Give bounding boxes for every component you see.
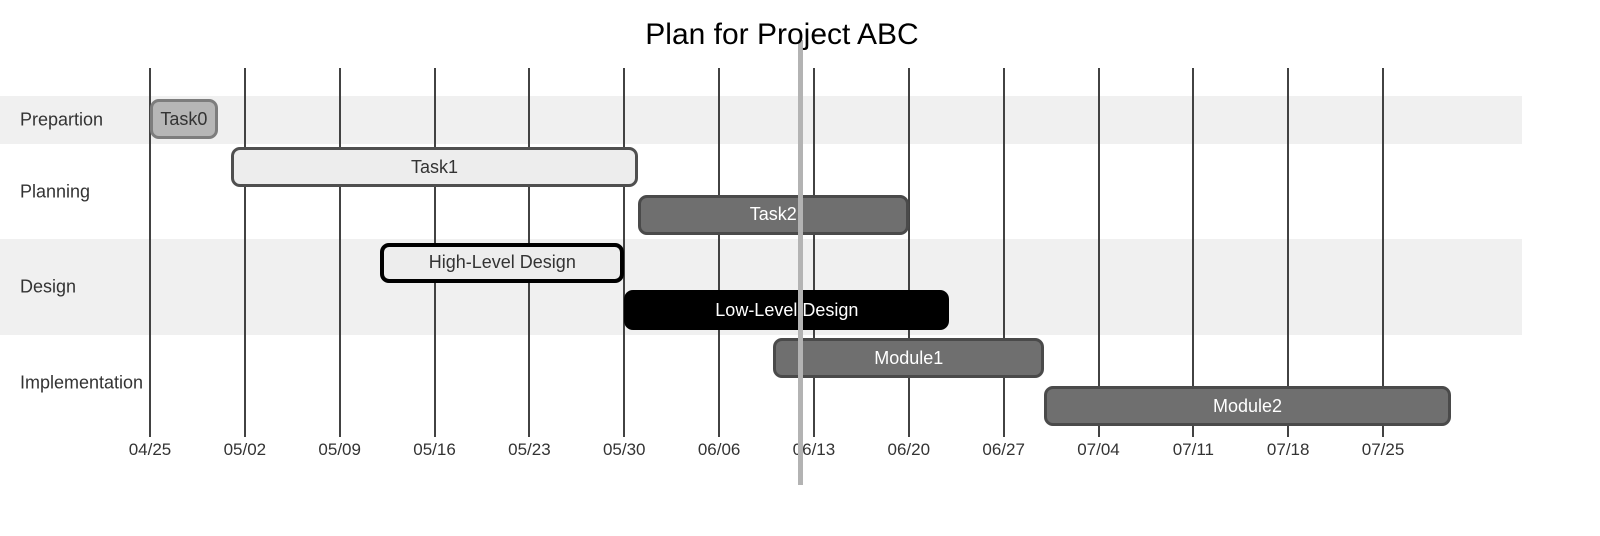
grid-line bbox=[813, 68, 815, 437]
axis-tick-label: 07/25 bbox=[1338, 440, 1428, 460]
section-label: Implementation bbox=[20, 372, 143, 393]
chart-title: Plan for Project ABC bbox=[0, 18, 1564, 52]
grid-line bbox=[339, 68, 341, 437]
task-bar-label: High-Level Design bbox=[429, 252, 576, 273]
axis-tick-label: 06/13 bbox=[769, 440, 859, 460]
task-bar-label: Task0 bbox=[160, 109, 207, 130]
axis-tick-label: 04/25 bbox=[105, 440, 195, 460]
grid-line bbox=[1003, 68, 1005, 437]
axis-tick-label: 05/16 bbox=[390, 440, 480, 460]
grid-line bbox=[908, 68, 910, 437]
grid-line bbox=[1098, 68, 1100, 437]
axis-tick-label: 05/02 bbox=[200, 440, 290, 460]
axis-tick-label: 05/23 bbox=[484, 440, 574, 460]
task-bar: Module2 bbox=[1044, 386, 1451, 426]
axis-tick-label: 06/20 bbox=[864, 440, 954, 460]
task-bar: Task2 bbox=[638, 195, 909, 235]
axis-tick-label: 05/09 bbox=[295, 440, 385, 460]
task-bar-label: Task2 bbox=[750, 204, 797, 225]
task-bar: Module1 bbox=[773, 338, 1044, 378]
grid-line bbox=[1287, 68, 1289, 437]
section-band bbox=[0, 96, 1522, 144]
axis-tick-label: 06/27 bbox=[959, 440, 1049, 460]
task-bar-label: Module2 bbox=[1213, 396, 1282, 417]
grid-line bbox=[718, 68, 720, 437]
task-bar: Task0 bbox=[150, 99, 218, 139]
grid-line bbox=[1192, 68, 1194, 437]
task-bar: High-Level Design bbox=[380, 243, 624, 283]
task-bar: Low-Level Design bbox=[624, 290, 949, 330]
task-bar: Task1 bbox=[231, 147, 638, 187]
grid-line bbox=[1382, 68, 1384, 437]
axis-tick-label: 05/30 bbox=[579, 440, 669, 460]
section-label: Design bbox=[20, 277, 76, 298]
axis-tick-label: 07/11 bbox=[1148, 440, 1238, 460]
task-bar-label: Module1 bbox=[874, 348, 943, 369]
axis-tick-label: 06/06 bbox=[674, 440, 764, 460]
task-bar-label: Low-Level Design bbox=[715, 300, 858, 321]
section-label: Prepartion bbox=[20, 109, 103, 130]
axis-tick-label: 07/18 bbox=[1243, 440, 1333, 460]
today-marker-line bbox=[798, 40, 803, 485]
section-label: Planning bbox=[20, 181, 90, 202]
task-bar-label: Task1 bbox=[411, 157, 458, 178]
axis-tick-label: 07/04 bbox=[1054, 440, 1144, 460]
gantt-chart: Plan for Project ABC PrepartionPlanningD… bbox=[0, 0, 1600, 536]
grid-line bbox=[244, 68, 246, 437]
